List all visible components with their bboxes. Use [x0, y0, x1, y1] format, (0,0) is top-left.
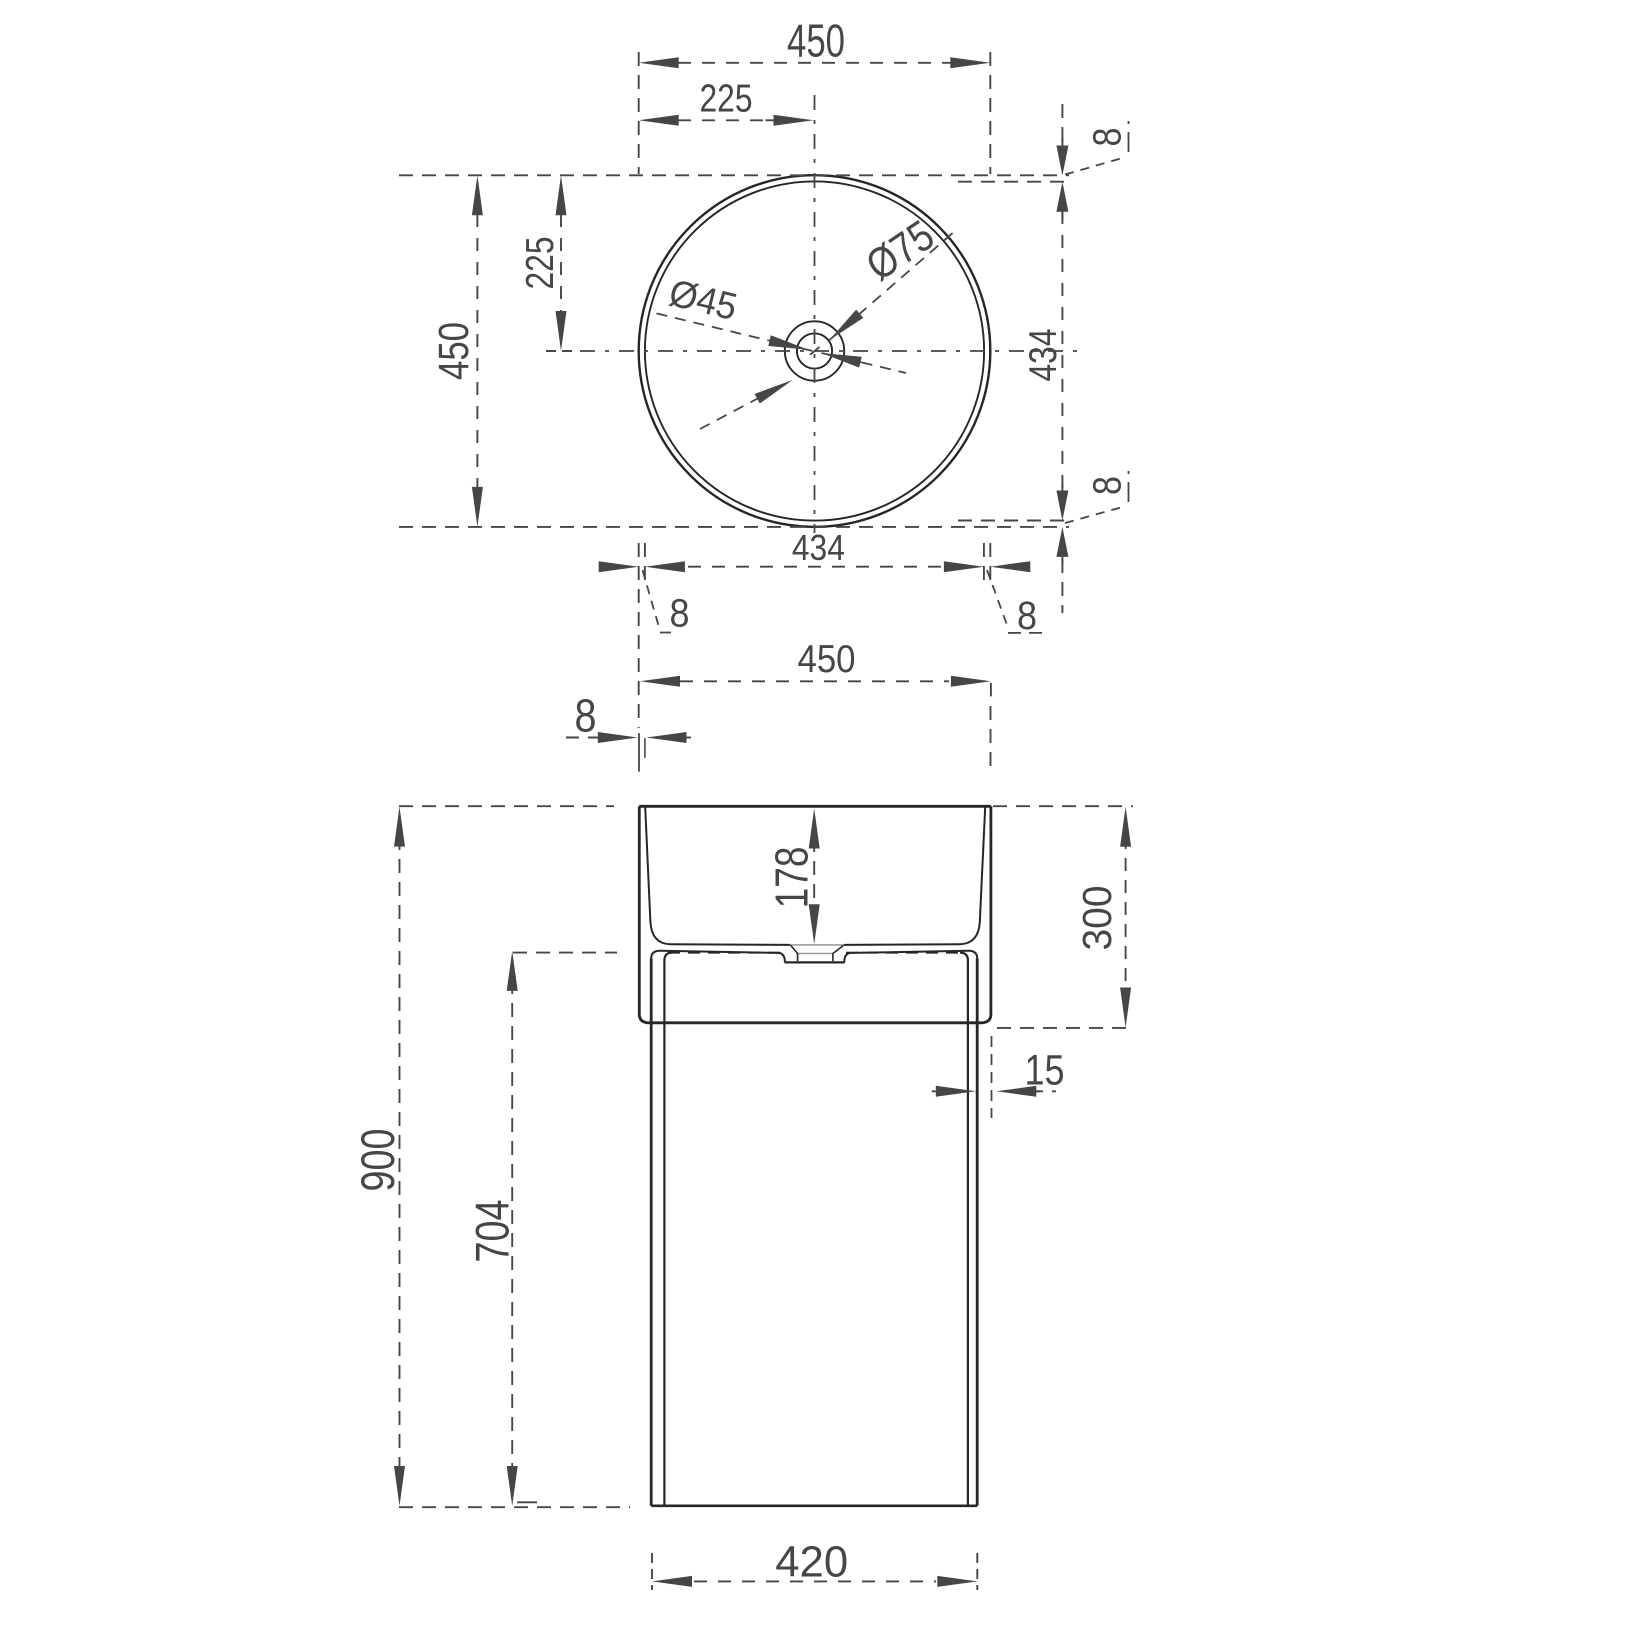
- svg-text:225: 225: [519, 237, 562, 290]
- svg-text:8: 8: [670, 592, 690, 636]
- svg-text:434: 434: [792, 527, 845, 568]
- svg-text:450: 450: [798, 638, 856, 681]
- svg-text:420: 420: [775, 1538, 848, 1587]
- svg-text:8: 8: [1086, 476, 1130, 495]
- svg-text:8: 8: [575, 689, 597, 741]
- svg-text:225: 225: [700, 77, 753, 120]
- svg-text:300: 300: [1074, 886, 1120, 951]
- svg-text:704: 704: [466, 1200, 519, 1263]
- svg-text:15: 15: [1025, 1047, 1065, 1095]
- svg-text:450: 450: [430, 322, 478, 380]
- svg-text:8: 8: [1017, 594, 1037, 638]
- svg-text:8: 8: [1086, 128, 1130, 147]
- svg-text:178: 178: [766, 846, 818, 908]
- svg-text:450: 450: [787, 14, 845, 66]
- svg-text:900: 900: [351, 1129, 404, 1192]
- svg-text:434: 434: [1022, 329, 1065, 382]
